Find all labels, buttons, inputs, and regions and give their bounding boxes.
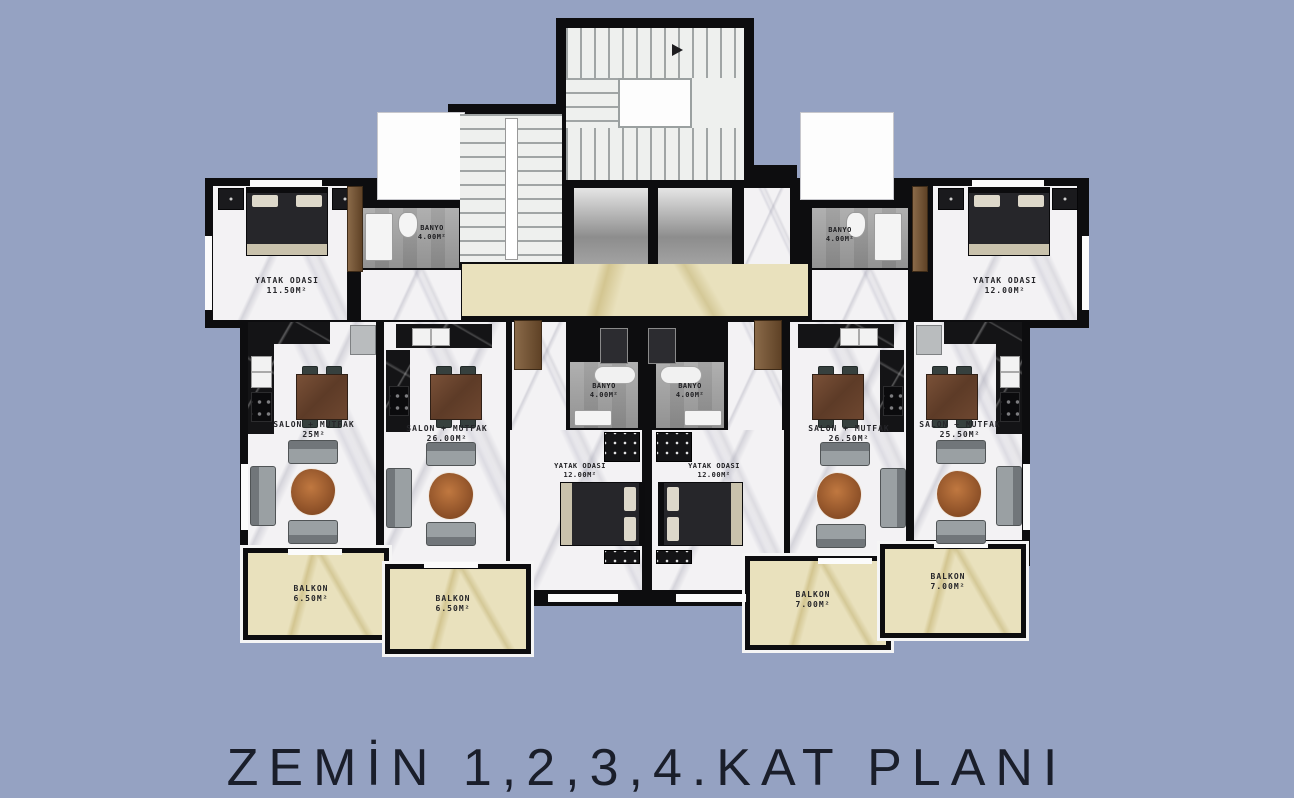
lobby-strip-floor: [744, 188, 790, 264]
room-area: 6.50M²: [436, 604, 471, 614]
unit2-wardrobe: [604, 432, 640, 462]
shaft-door-right: [648, 328, 676, 364]
nightstand: [1052, 188, 1078, 210]
room-name: BANYO: [592, 382, 616, 391]
plan-title: ZEMİN 1,2,3,4.KAT PLANI: [0, 738, 1294, 798]
nightstand: [938, 188, 964, 210]
sofa: [820, 442, 870, 466]
stove: [883, 386, 903, 416]
unit4-kitchen-counter: [944, 322, 1022, 344]
bath-vanity: [874, 213, 902, 261]
sofa: [816, 524, 866, 548]
room-label-unit1-banyo: BANYO 4.00M²: [418, 224, 446, 242]
bath-vanity: [684, 410, 722, 426]
unit3-bed: [658, 482, 743, 546]
stair-treads-top: [566, 28, 744, 78]
unit4-dining-table: [926, 374, 978, 420]
room-area: 12.00M²: [563, 471, 596, 480]
room-area: 4.00M²: [590, 391, 618, 400]
room-area: 4.00M²: [676, 391, 704, 400]
window: [241, 464, 248, 530]
sofa: [996, 466, 1022, 526]
nightstand: [218, 188, 244, 210]
room-name: BANYO: [828, 226, 852, 235]
room-name: BALKON: [294, 584, 329, 594]
room-area: 7.00M²: [931, 582, 966, 592]
fridge: [916, 325, 942, 355]
room-name: BANYO: [420, 224, 444, 233]
room-name: BALKON: [931, 572, 966, 582]
room-label-unit1-bedroom: YATAK ODASI 11.50M²: [255, 276, 319, 296]
room-name: SALON + MUTFAK: [808, 424, 889, 434]
room-label-unit3-salon: SALON + MUTFAK 26.50M²: [808, 424, 889, 444]
kitchen-sink: [1000, 356, 1020, 388]
window: [1023, 464, 1030, 530]
room-label-unit4-bedroom: YATAK ODASI 12.00M²: [973, 276, 1037, 296]
room-name: YATAK ODASI: [255, 276, 319, 286]
room-label-unit3-balkon: BALKON 7.00M²: [796, 590, 831, 610]
bath-vanity: [574, 410, 612, 426]
unit3-dining-table: [812, 374, 864, 420]
toilet: [398, 212, 418, 238]
sofa: [426, 522, 476, 546]
unit4-bed: [968, 187, 1050, 256]
room-label-unit3-bedroom: YATAK ODASI 12.00M²: [688, 462, 740, 480]
unit1-kitchen-counter: [248, 322, 330, 344]
kitchen-sink: [840, 328, 878, 346]
stair-treads-bottom: [566, 128, 744, 180]
stairwell-floor: [566, 28, 744, 180]
room-area: 26.00M²: [427, 434, 468, 444]
room-area: 6.50M²: [294, 594, 329, 604]
room-name: BALKON: [796, 590, 831, 600]
balcony-door-gap: [424, 562, 478, 568]
window: [205, 236, 212, 310]
bed-bench: [656, 550, 692, 564]
unit3-entry-door: [754, 320, 782, 370]
room-label-unit2-banyo: BANYO 4.00M²: [590, 382, 618, 400]
room-label-unit1-salon: SALON + MUTFAK 25M²: [273, 420, 354, 440]
room-label-unit2-salon: SALON + MUTFAK 26.00M²: [406, 424, 487, 444]
sofa: [250, 466, 276, 526]
room-label-unit2-balkon: BALKON 6.50M²: [436, 594, 471, 614]
stair-treads-left: [566, 78, 618, 128]
sofa: [936, 440, 986, 464]
room-name: SALON + MUTFAK: [919, 420, 1000, 430]
room-name: BANYO: [678, 382, 702, 391]
sofa: [386, 468, 412, 528]
unit1-dining-table: [296, 374, 348, 420]
room-area: 25.50M²: [940, 430, 981, 440]
unit4-hall-floor: [812, 270, 908, 320]
corridor-floor: [462, 264, 808, 316]
unit1-hall-floor: [361, 270, 461, 320]
shaft-door-left: [600, 328, 628, 364]
sofa: [426, 442, 476, 466]
elevator-right: [658, 188, 732, 264]
room-label-unit4-banyo: BANYO 4.00M²: [826, 226, 854, 244]
room-area: 4.00M²: [826, 235, 854, 244]
room-area: 26.50M²: [829, 434, 870, 444]
room-name: YATAK ODASI: [554, 462, 606, 471]
unit1-bedroom-door: [347, 186, 363, 272]
room-area: 7.00M²: [796, 600, 831, 610]
window: [972, 180, 1044, 187]
sofa: [288, 520, 338, 544]
stair-landing: [618, 78, 692, 128]
bed-bench: [604, 550, 640, 564]
unit2-dining-table: [430, 374, 482, 420]
room-label-unit3-banyo: BANYO 4.00M²: [676, 382, 704, 400]
secondary-stair-floor: [460, 114, 562, 262]
room-label-unit4-salon: SALON + MUTFAK 25.50M²: [919, 420, 1000, 440]
unit2-bed: [560, 482, 645, 546]
elevator-left: [574, 188, 648, 264]
stove: [251, 392, 272, 422]
room-area: 12.00M²: [985, 286, 1026, 296]
page: { "title": "ZEMİN 1,2,3,4.KAT PLANI", "p…: [0, 0, 1294, 794]
white-block-right: [800, 112, 894, 200]
room-area: 4.00M²: [418, 233, 446, 242]
unit1-bed: [246, 187, 328, 256]
room-label-unit2-bedroom: YATAK ODASI 12.00M²: [554, 462, 606, 480]
window: [548, 594, 618, 602]
unit4-bedroom-door: [912, 186, 928, 272]
white-block-left: [377, 112, 465, 200]
window: [250, 180, 322, 187]
room-label-unit4-balkon: BALKON 7.00M²: [931, 572, 966, 592]
unit3-wardrobe: [656, 432, 692, 462]
sofa: [936, 520, 986, 544]
balcony-door-gap: [818, 558, 872, 564]
room-name: SALON + MUTFAK: [406, 424, 487, 434]
room-name: BALKON: [436, 594, 471, 604]
unit2-entry-door: [514, 320, 542, 370]
kitchen-sink: [251, 356, 272, 388]
stove: [389, 386, 409, 416]
stair-rail: [505, 118, 518, 260]
room-name: SALON + MUTFAK: [273, 420, 354, 430]
sofa: [288, 440, 338, 464]
room-area: 25M²: [302, 430, 325, 440]
balcony-door-gap: [288, 549, 342, 555]
kitchen-sink: [412, 328, 450, 346]
room-area: 12.00M²: [697, 471, 730, 480]
room-name: YATAK ODASI: [973, 276, 1037, 286]
floor-plan: YATAK ODASI 11.50M² BANYO 4.00M² SALON +…: [0, 0, 1294, 794]
bath-vanity: [365, 213, 393, 261]
stove: [1000, 392, 1020, 422]
room-name: YATAK ODASI: [688, 462, 740, 471]
sofa: [880, 468, 906, 528]
window: [1082, 236, 1089, 310]
room-label-unit1-balkon: BALKON 6.50M²: [294, 584, 329, 604]
fridge: [350, 325, 376, 355]
room-area: 11.50M²: [267, 286, 308, 296]
stair-direction-arrow-icon: [672, 44, 683, 56]
window: [676, 594, 746, 602]
